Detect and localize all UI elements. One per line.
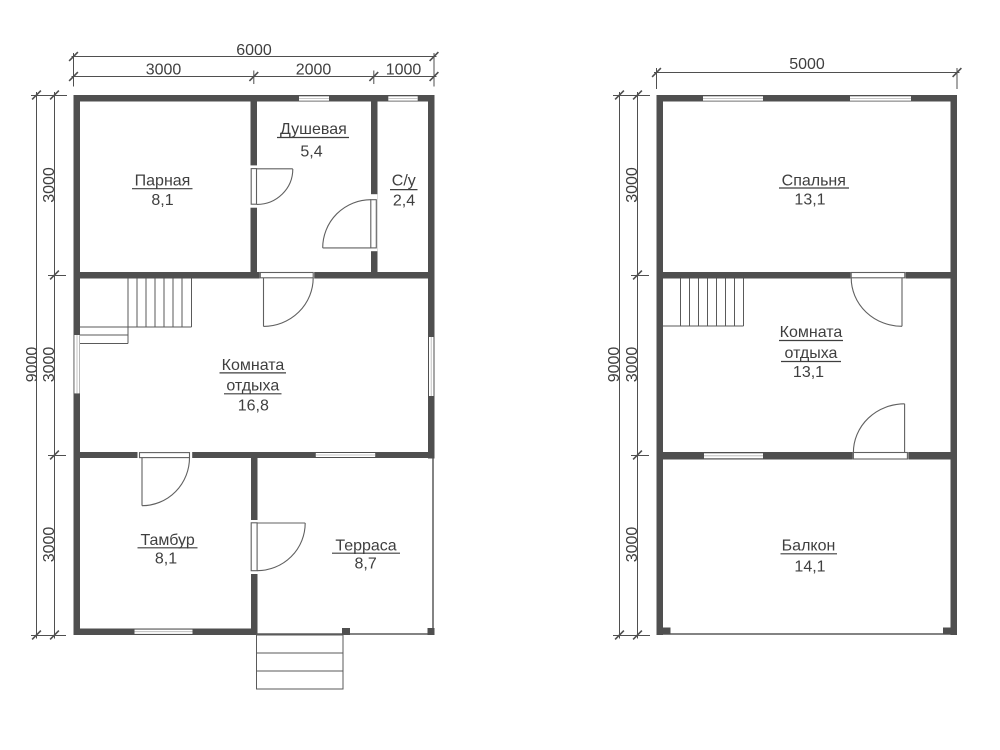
svg-text:13,1: 13,1 <box>793 364 824 381</box>
svg-text:отдыха: отдыха <box>785 345 838 362</box>
svg-text:8,1: 8,1 <box>155 551 177 568</box>
svg-text:Терраса: Терраса <box>335 537 396 554</box>
svg-text:3000: 3000 <box>624 167 641 203</box>
svg-text:2,4: 2,4 <box>393 193 415 210</box>
svg-text:3000: 3000 <box>41 527 58 563</box>
svg-text:Душевая: Душевая <box>280 121 347 138</box>
svg-text:8,7: 8,7 <box>354 556 376 573</box>
svg-text:Комната: Комната <box>780 324 843 341</box>
svg-text:Парная: Парная <box>135 173 191 190</box>
svg-text:2000: 2000 <box>296 62 332 79</box>
svg-text:9000: 9000 <box>24 347 41 383</box>
svg-text:Комната: Комната <box>222 357 285 374</box>
svg-text:16,8: 16,8 <box>238 397 269 414</box>
svg-text:9000: 9000 <box>606 347 623 383</box>
svg-text:3000: 3000 <box>624 347 641 383</box>
svg-text:5000: 5000 <box>789 56 825 73</box>
svg-text:3000: 3000 <box>41 347 58 383</box>
svg-text:отдыха: отдыха <box>226 378 279 395</box>
svg-text:1000: 1000 <box>386 62 422 79</box>
svg-text:Спальня: Спальня <box>782 173 846 190</box>
svg-text:Тамбур: Тамбур <box>140 532 194 549</box>
svg-text:3000: 3000 <box>146 62 182 79</box>
svg-text:С/у: С/у <box>392 173 416 190</box>
svg-text:14,1: 14,1 <box>794 559 825 576</box>
svg-text:8,1: 8,1 <box>151 192 173 209</box>
svg-text:6000: 6000 <box>236 42 272 59</box>
svg-text:Балкон: Балкон <box>782 538 836 555</box>
svg-text:3000: 3000 <box>624 527 641 563</box>
svg-text:5,4: 5,4 <box>300 144 322 161</box>
svg-text:3000: 3000 <box>41 167 58 203</box>
svg-text:13,1: 13,1 <box>794 192 825 209</box>
